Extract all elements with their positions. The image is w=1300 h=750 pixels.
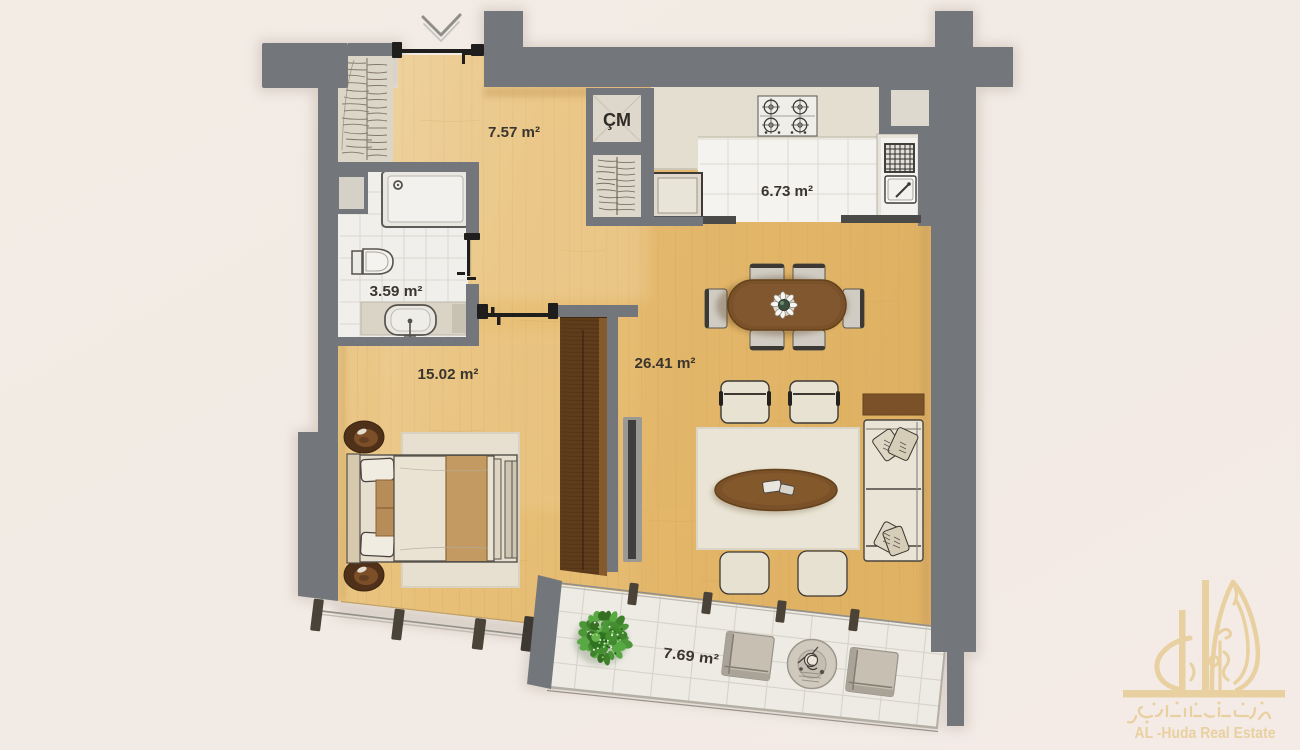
svg-text:6.73 m²: 6.73 m² [761, 183, 813, 200]
svg-text:AL -Huda Real Estate: AL -Huda Real Estate [1135, 725, 1276, 742]
svg-text:3.59 m²: 3.59 m² [370, 284, 423, 300]
svg-text:7.57 m²: 7.57 m² [488, 124, 540, 141]
svg-text:26.41 m²: 26.41 m² [635, 355, 696, 372]
svg-text:ÇM: ÇM [603, 110, 631, 130]
svg-text:15.02 m²: 15.02 m² [418, 366, 479, 383]
